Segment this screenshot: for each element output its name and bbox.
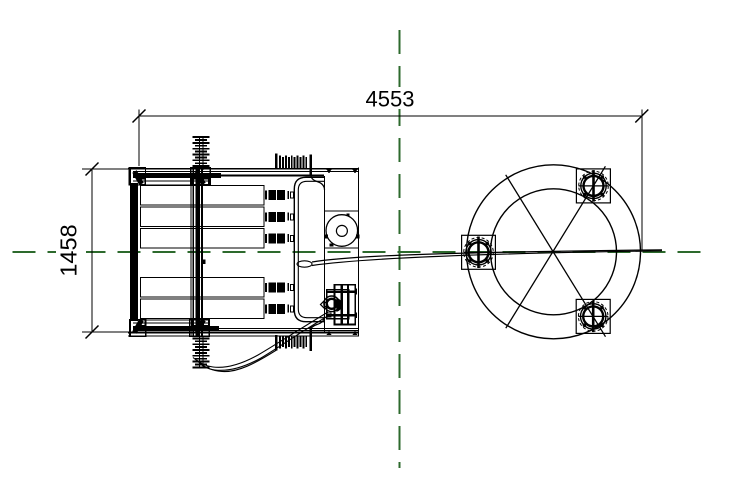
svg-text:4553: 4553 xyxy=(366,87,415,112)
svg-text:1458: 1458 xyxy=(56,224,82,276)
